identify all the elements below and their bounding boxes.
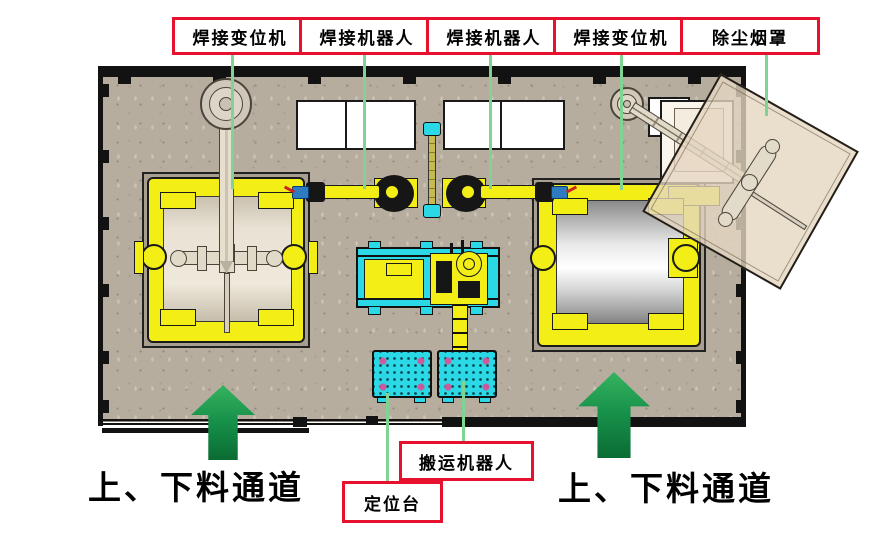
wall-bottom-band: [442, 417, 746, 427]
antenna-pin: [461, 240, 464, 253]
fence-post: [103, 284, 109, 297]
right-tailstock-hub: [623, 100, 631, 108]
callout-handling-robot: 搬运机器人: [399, 441, 534, 481]
track-foot: [420, 241, 433, 249]
spreader-hub: [741, 174, 758, 191]
side-tab: [134, 241, 144, 274]
handling-robot-detail: [458, 281, 480, 298]
fence-post: [736, 284, 742, 297]
side-tab: [308, 241, 318, 274]
wall-gate-post: [366, 416, 378, 425]
fence-post: [498, 77, 511, 84]
wall-bottom-rail: [102, 428, 309, 433]
welding-robot-right-hub: [461, 185, 475, 199]
clamp-block: [552, 313, 588, 330]
leader-line: [765, 49, 768, 116]
antenna-pin: [450, 243, 453, 253]
callout-positioning-table: 定位台: [342, 481, 443, 523]
fence-post: [403, 77, 416, 84]
cabinet-divider: [500, 102, 502, 148]
fence-post: [736, 400, 742, 413]
fence-post: [103, 217, 109, 230]
trunnion-bearing: [530, 245, 556, 271]
callout-welding-robot-left: 焊接机器人: [299, 17, 435, 55]
spreader-knob: [765, 139, 780, 154]
track-foot: [368, 306, 381, 315]
tool-rail-cap: [423, 204, 441, 218]
leader-line: [363, 49, 366, 189]
welding-torch-right: [551, 186, 568, 199]
spreader-knob: [718, 212, 733, 227]
trunnion-bearing: [672, 244, 700, 272]
table-foot: [479, 397, 491, 403]
trunnion-bearing: [141, 244, 167, 270]
fence-post: [118, 77, 131, 84]
welding-robot-left-arm: [322, 185, 380, 199]
leader-line: [489, 49, 492, 189]
column-rod: [224, 273, 230, 333]
leader-line: [231, 49, 234, 189]
callout-dust-hood: 除尘烟罩: [680, 17, 820, 55]
track-foot: [420, 306, 433, 315]
fence-post: [103, 400, 109, 413]
shaft-flange: [247, 246, 257, 271]
fence-post: [688, 77, 701, 84]
welding-cell-layout-diagram: 焊接变位机 焊接机器人 焊接机器人 焊接变位机 除尘烟罩 搬运机器人 定位台 上…: [0, 0, 871, 538]
clamp-block: [160, 192, 196, 209]
shaft-end: [266, 250, 283, 267]
track-panel: [386, 263, 412, 276]
positioning-table-right: [437, 350, 497, 398]
leader-line: [620, 49, 623, 190]
table-foot: [442, 397, 454, 403]
cabinet-divider: [345, 102, 347, 148]
clamp-block: [258, 192, 294, 209]
fence-post: [593, 77, 606, 84]
control-cabinet-left: [296, 100, 416, 150]
channel-text-left: 上、下料通道: [88, 461, 304, 509]
wall-top: [98, 66, 746, 77]
handling-robot-joint-hub: [463, 258, 475, 270]
callout-welding-positioner-right: 焊接变位机: [553, 17, 689, 55]
wall-gate-post: [293, 417, 307, 427]
positioning-table-left: [372, 350, 432, 398]
track-foot: [470, 241, 483, 249]
welding-robot-left-hub: [385, 185, 399, 199]
callout-welding-positioner-left: 焊接变位机: [172, 17, 308, 55]
shaft-end: [170, 250, 187, 267]
fence-post: [308, 77, 321, 84]
leader-line: [462, 381, 465, 441]
control-cabinet-right: [443, 100, 565, 150]
track-foot: [368, 241, 381, 249]
clamp-block: [552, 198, 588, 215]
clamp-block: [160, 309, 196, 326]
fence-post: [736, 351, 742, 364]
wall-left: [98, 66, 103, 426]
clamp-block: [258, 309, 294, 326]
trunnion-bearing: [281, 244, 307, 270]
fence-post: [103, 150, 109, 163]
handling-robot-motor: [436, 261, 452, 293]
shaft-flange: [197, 246, 207, 271]
channel-text-right: 上、下料通道: [558, 462, 774, 510]
table-foot: [414, 397, 426, 403]
tool-rail-cap: [423, 122, 441, 136]
leader-line: [386, 393, 389, 481]
welding-torch-left: [292, 186, 309, 199]
callout-welding-robot-right: 焊接机器人: [426, 17, 562, 55]
tool-rail: [428, 134, 436, 206]
clamp-block: [648, 313, 684, 330]
fence-post: [103, 351, 109, 364]
fence-post: [103, 84, 109, 97]
track-foot: [470, 306, 483, 315]
